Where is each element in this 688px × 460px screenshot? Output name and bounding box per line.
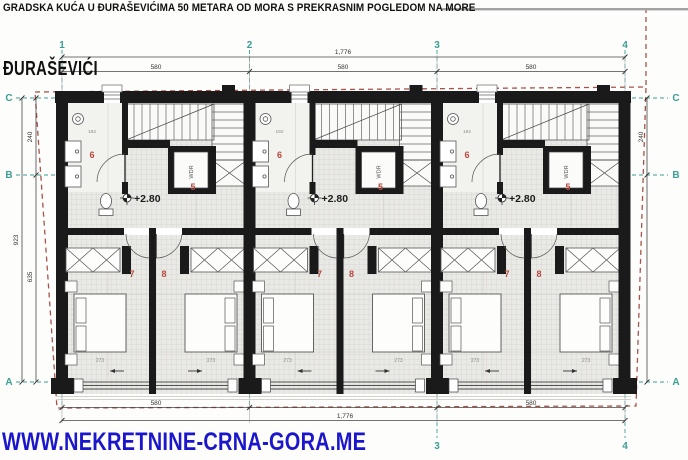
unit-3: WDR: [426, 85, 631, 394]
bed-dim-label: 273: [582, 358, 591, 364]
bed-dim-label: 273: [207, 358, 216, 364]
bath-dim-label: 192: [88, 129, 96, 135]
room-number-bedroom-right: 8: [349, 269, 354, 279]
floor-plan-page: 1 2 3 4 3 4 C B A C B A: [0, 0, 688, 460]
website-url: WWW.NEKRETNINE-CRNA-GORA.ME: [2, 428, 366, 457]
dim-bay2-top: 580: [338, 64, 349, 71]
wardrobe-label: WDR: [189, 165, 195, 178]
dim-bay3-bottom: 580: [526, 400, 537, 407]
dim-row-ba-left: 635: [27, 271, 34, 282]
dim-row-cb-right: 240: [638, 131, 645, 142]
grid-row-c-left: C: [5, 93, 12, 104]
room-number-bedroom-left: 7: [317, 269, 322, 279]
bed-dim-label: 273: [96, 358, 105, 364]
dim-bay1-top: 580: [151, 64, 162, 71]
toilet: [101, 194, 112, 209]
dim-overall-width-top: 1,776: [335, 49, 352, 56]
header-title: GRADSKA KUĆA U ĐURAŠEVIĆIMA 50 METARA OD…: [3, 2, 475, 14]
grid-row-b-right: B: [672, 170, 679, 181]
dim-overall-height-left: 923: [13, 234, 20, 245]
grid-row-b-left: B: [5, 170, 12, 181]
room-number-bedroom-left: 7: [504, 269, 509, 279]
location-label: ĐURAŠEVIĆI: [3, 58, 98, 81]
room-number-bedroom-right: 8: [161, 269, 166, 279]
wardrobe-label: WDR: [377, 165, 383, 178]
level-label: +2.80: [322, 193, 349, 205]
grid-row-c-right: C: [672, 93, 679, 104]
bed-dim-label: 273: [471, 358, 480, 364]
level-label: +2.80: [134, 193, 161, 205]
room-number-hall: 5: [378, 182, 383, 192]
bath-dim-label: 192: [275, 129, 283, 135]
room-number-hall: 5: [565, 182, 570, 192]
room-number-bedroom-right: 8: [536, 269, 541, 279]
unit-2: WDR: [239, 85, 444, 394]
dim-row-cb-left: 240: [27, 131, 34, 142]
header-rule: [442, 8, 688, 10]
bed-dim-label: 273: [283, 358, 292, 364]
room-number-bathroom: 6: [277, 150, 282, 160]
room-number-hall: 5: [190, 182, 195, 192]
grid-col-4-top: 4: [622, 40, 628, 51]
dim-bay3-top: 580: [526, 64, 537, 71]
room-number-bathroom: 6: [89, 150, 94, 160]
entry-window-opening: [479, 92, 495, 103]
unit-1: WDR: [51, 85, 256, 394]
terrace-edge: [56, 397, 631, 400]
bed-dim-label: 273: [394, 358, 403, 364]
room-number-bedroom-left: 7: [129, 269, 134, 279]
room-number-bathroom: 6: [464, 150, 469, 160]
toilet: [476, 194, 487, 209]
grid-col-1-top: 1: [59, 40, 65, 51]
dim-bay1-bottom: 580: [151, 400, 162, 407]
wardrobe-label: WDR: [564, 165, 570, 178]
entry-window-opening: [104, 92, 120, 103]
toilet: [288, 194, 299, 209]
level-label: +2.80: [509, 193, 536, 205]
bath-dim-label: 192: [463, 129, 471, 135]
grid-col-4-bottom: 4: [622, 441, 628, 452]
grid-row-a-right: A: [672, 377, 679, 388]
grid-col-3-top: 3: [434, 40, 440, 51]
floor-plan-svg: 1 2 3 4 3 4 C B A C B A: [0, 0, 688, 460]
entry-window-opening: [292, 92, 308, 103]
dim-overall-width-bottom: 1,776: [337, 413, 354, 420]
grid-row-a-left: A: [5, 377, 12, 388]
grid-col-2-top: 2: [247, 40, 253, 51]
grid-col-3-bottom: 3: [434, 441, 440, 452]
